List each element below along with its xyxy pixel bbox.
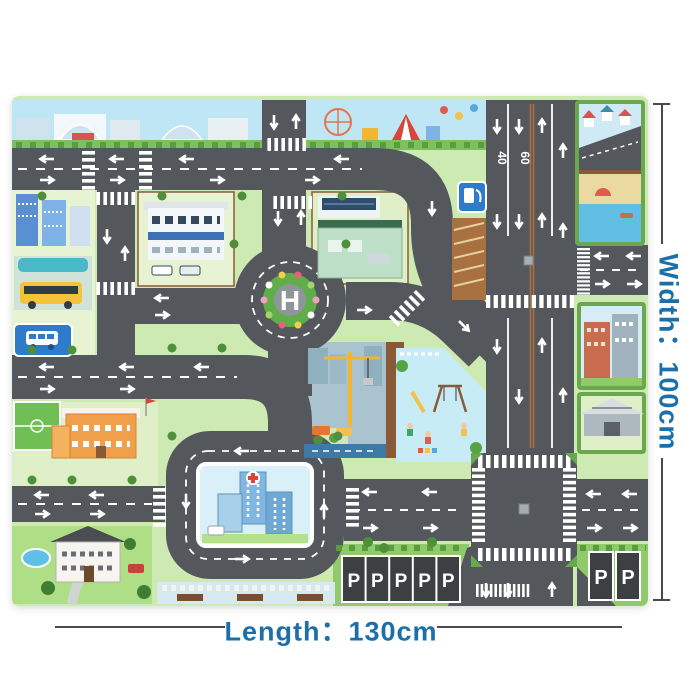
toy-block	[425, 448, 430, 453]
length-line-left	[55, 626, 225, 628]
top-scenery-strip	[12, 100, 488, 150]
width-line-upper	[661, 104, 663, 244]
townhouse-card	[577, 302, 646, 390]
parking-letter: P	[418, 571, 431, 592]
school-wing	[52, 426, 70, 458]
toy-block	[432, 448, 437, 453]
bench	[177, 594, 203, 601]
length-label: Length：130cm	[224, 610, 437, 649]
width-tick-bottom	[653, 599, 670, 601]
police-car	[180, 266, 200, 275]
traffic-control-box	[524, 256, 533, 265]
bus-stop-sign	[14, 324, 72, 356]
bench	[237, 594, 263, 601]
ambulance	[208, 526, 224, 535]
office-tower	[70, 206, 90, 246]
bus-shelter-canopy	[18, 258, 88, 272]
swimming-pool	[22, 549, 50, 567]
boat	[620, 213, 633, 218]
parking-letter: P	[395, 571, 408, 592]
parking-row: P P P P P	[336, 548, 464, 602]
hospital-card	[198, 464, 312, 546]
angled-parking-strip	[452, 218, 486, 300]
red-car	[128, 564, 144, 573]
balloon-yellow	[455, 112, 463, 120]
play-mat: 40 60 H	[12, 96, 648, 606]
speed-limit-40: 40	[495, 151, 509, 165]
warehouse-door	[604, 422, 620, 436]
red-bus	[72, 133, 94, 140]
hospital-wing	[266, 492, 292, 534]
school-door	[96, 446, 106, 458]
delivery-truck	[368, 254, 390, 264]
crane-load	[363, 378, 373, 385]
warehouse-card	[577, 392, 646, 454]
traffic-control-box	[519, 504, 529, 514]
width-label: Width：100cm	[652, 254, 691, 451]
balloon-blue	[470, 104, 478, 112]
parking-letter: P	[442, 571, 455, 592]
mansion-door	[84, 566, 94, 582]
scene-divider	[579, 170, 641, 174]
office-tower	[16, 194, 38, 246]
toy-block	[418, 448, 423, 453]
park-booth	[362, 128, 378, 140]
store-building	[318, 228, 402, 278]
fuel-sign	[458, 182, 486, 212]
lake-water	[579, 204, 641, 242]
helipad-letter: H	[280, 285, 300, 316]
work-truck	[312, 426, 330, 435]
parking-letter: P	[594, 567, 607, 589]
width-line-lower	[661, 458, 663, 600]
parking-letter: P	[621, 567, 634, 589]
fuel-pump-icon	[464, 188, 474, 203]
store-roof	[318, 220, 402, 228]
bench-strip	[157, 582, 335, 604]
product-image: 40 60 H	[0, 0, 700, 700]
bench	[297, 594, 323, 601]
balloon-red	[440, 106, 448, 114]
police-stripe	[148, 232, 224, 240]
parking-letter: P	[371, 571, 384, 592]
police-car	[152, 266, 172, 275]
top-right-corner-card	[575, 100, 645, 246]
parking-letter: P	[347, 571, 360, 592]
corner-parking: P P	[580, 548, 646, 600]
speed-limit-60: 60	[518, 151, 532, 165]
length-line-right	[437, 626, 622, 628]
beach-sand	[579, 174, 641, 204]
office-tower	[42, 200, 66, 246]
